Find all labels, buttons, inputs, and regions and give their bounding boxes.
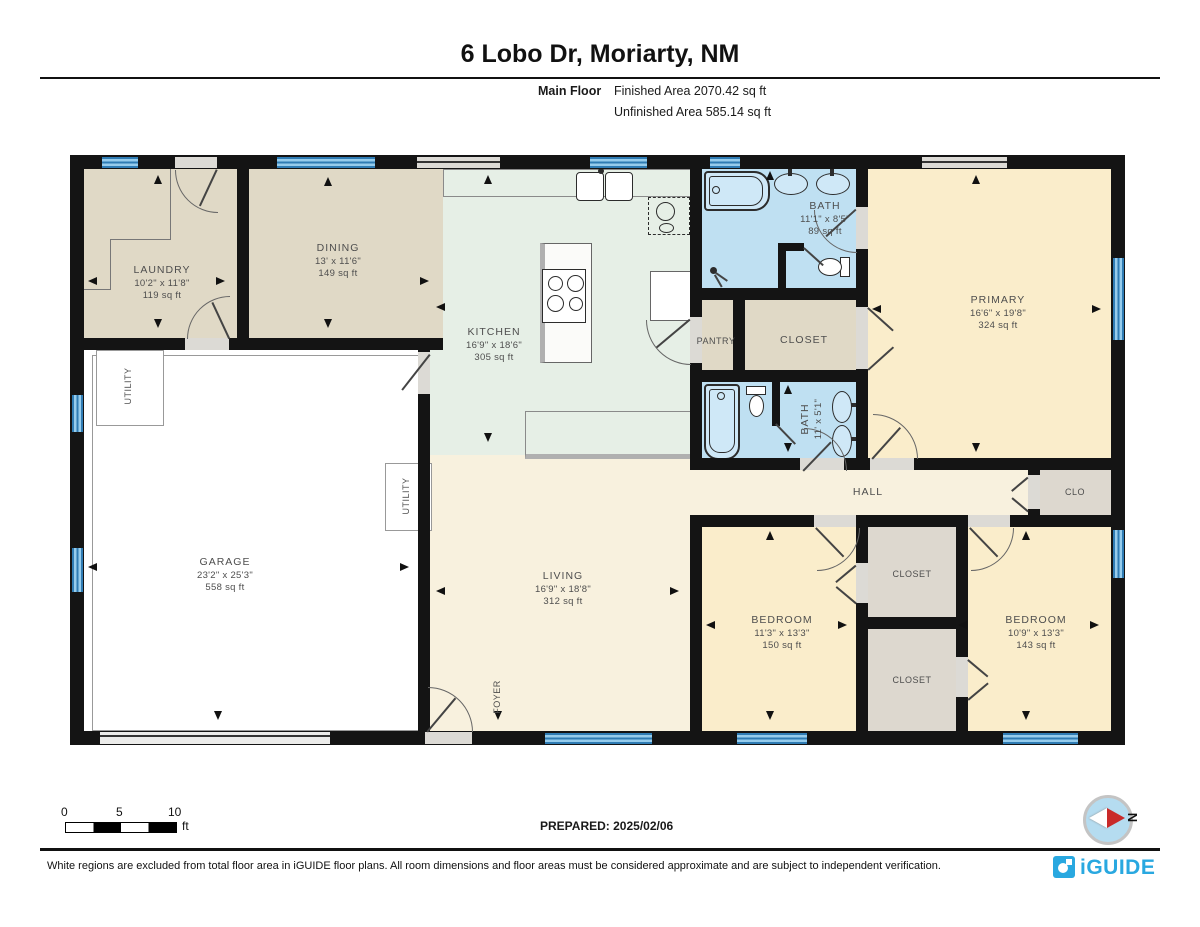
door-opening (968, 515, 1010, 527)
finished-area: Finished Area 2070.42 sq ft (614, 84, 766, 98)
room-label-closet-b: CLOSET (892, 675, 931, 687)
measure-arrow (766, 531, 774, 540)
toilet-tank (746, 386, 766, 395)
measure-arrow (706, 621, 715, 629)
wall-segment (70, 155, 84, 745)
stove-burner (548, 276, 563, 291)
measure-arrow (784, 443, 792, 452)
footer-disclaimer: White regions are excluded from total fl… (47, 860, 987, 872)
laundry-counter-line (170, 169, 171, 239)
measure-arrow (88, 277, 97, 285)
measure-arrow (214, 711, 222, 720)
scale-tick-10: 10 (168, 805, 181, 819)
measure-arrow (216, 277, 225, 285)
bathtub (704, 171, 770, 211)
measure-arrow (1022, 711, 1030, 720)
room-label-kitchen: KITCHEN 16'9" x 18'6" 305 sq ft (466, 326, 522, 364)
door-opening (175, 157, 217, 168)
room-label-living: LIVING 16'9" x 18'8" 312 sq ft (535, 570, 591, 608)
scale-tick-0: 0 (61, 805, 68, 819)
laundry-counter-line (110, 239, 111, 289)
stove-burner (567, 275, 584, 292)
measure-arrow (958, 621, 967, 629)
room-closets-mid (868, 527, 956, 731)
iguide-brand: iGUIDE (1080, 856, 1155, 880)
footer-divider (40, 848, 1160, 851)
wall-segment (690, 527, 702, 731)
door-opening (185, 338, 229, 350)
measure-arrow (88, 563, 97, 571)
compass-needle-north (1107, 808, 1125, 828)
sink (774, 173, 808, 195)
compass-needle-tail (1089, 808, 1107, 828)
measure-arrow (420, 277, 429, 285)
floor-label: Main Floor (538, 84, 601, 98)
window (72, 395, 83, 432)
garage-door-opening (100, 732, 330, 744)
prepared-date: PREPARED: 2025/02/06 (540, 819, 673, 833)
room-label-garage: GARAGE 23'2" x 25'3" 558 sq ft (197, 556, 253, 594)
kitchen-sink-basin (576, 172, 604, 201)
wall-segment (1111, 155, 1125, 745)
room-label-dining: DINING 13' x 11'6" 149 sq ft (315, 242, 361, 280)
window (545, 733, 652, 744)
kitchen-counter-bottom (525, 411, 692, 459)
appliance-burner-icon (656, 202, 675, 221)
door-opening (856, 307, 868, 369)
door-opening (870, 458, 914, 470)
window (72, 548, 83, 592)
measure-arrow (400, 563, 409, 571)
compass: N (1080, 792, 1140, 848)
title-divider (40, 77, 1160, 79)
door-opening (1028, 475, 1040, 509)
measure-arrow (784, 385, 792, 394)
bathtub (704, 384, 740, 460)
measure-arrow (436, 587, 445, 595)
sink (832, 391, 852, 423)
door-opening (418, 352, 430, 394)
room-label-primary: PRIMARY 16'6" x 19'8" 324 sq ft (970, 294, 1026, 332)
room-label-utility-a: UTILITY (123, 367, 135, 404)
window (102, 157, 138, 168)
scale-bar: 0 5 10 ft (60, 805, 220, 840)
stove-burner (547, 295, 564, 312)
unfinished-area: Unfinished Area 585.14 sq ft (614, 105, 771, 119)
door-opening (956, 657, 968, 697)
scale-bar-segments (65, 822, 177, 833)
toilet-bowl (749, 395, 764, 417)
kitchen-fridge-box (650, 271, 692, 321)
wall-segment (868, 617, 956, 629)
measure-arrow (1092, 305, 1101, 313)
measure-arrow (1090, 621, 1099, 629)
room-label-hall: HALL (853, 486, 883, 500)
door-opening (425, 732, 472, 744)
measure-arrow (972, 443, 980, 452)
measure-arrow (324, 319, 332, 328)
measure-arrow (324, 177, 332, 186)
room-label-bedroom-a: BEDROOM 11'3" x 13'3" 150 sq ft (751, 614, 812, 652)
room-label-pantry: PANTRY (697, 336, 736, 348)
room-label-utility-b: UTILITY (401, 477, 413, 514)
toilet-bowl (818, 258, 842, 276)
measure-arrow (484, 433, 492, 442)
sink-faucet (788, 168, 792, 176)
floor-plan: LAUNDRY 10'2" x 11'8" 119 sq ft DINING 1… (70, 155, 1125, 745)
measure-arrow (154, 319, 162, 328)
room-label-bath-main: BATH 11'1" x 8'5" 89 sq ft (800, 200, 850, 238)
door-opening (856, 563, 868, 603)
window (590, 157, 647, 168)
room-label-foyer: FOYER (492, 680, 504, 714)
door-opening (856, 207, 868, 249)
room-label-bedroom-b: BEDROOM 10'9" x 13'3" 143 sq ft (1005, 614, 1066, 652)
door-opening (814, 515, 856, 527)
scale-tick-5: 5 (116, 805, 123, 819)
room-label-closet-a: CLOSET (892, 569, 931, 581)
wall-opening (922, 157, 1007, 168)
wall-segment (237, 169, 249, 350)
measure-arrow (484, 175, 492, 184)
measure-arrow (436, 303, 445, 311)
iguide-logo-icon (1053, 856, 1075, 878)
room-label-closet-primary: CLOSET (780, 334, 828, 348)
bathtub-drain (717, 392, 725, 400)
window (1113, 258, 1124, 340)
measure-arrow (972, 175, 980, 184)
wall-segment (70, 338, 443, 350)
compass-north-label: N (1125, 813, 1140, 822)
floor-plan-page: 6 Lobo Dr, Moriarty, NM Main Floor Finis… (0, 0, 1200, 927)
appliance-oval-icon (659, 223, 674, 233)
wall-segment (772, 382, 780, 426)
scale-unit: ft (182, 819, 189, 833)
measure-arrow (838, 621, 847, 629)
wall-segment (418, 350, 430, 731)
bathtub-drain (712, 186, 720, 194)
laundry-counter-line (110, 239, 171, 240)
measure-arrow (154, 175, 162, 184)
window (277, 157, 375, 168)
kitchen-sink-basin (605, 172, 633, 201)
window (1113, 530, 1124, 578)
stove-burner (569, 297, 583, 311)
wall-opening (417, 157, 500, 168)
measure-arrow (766, 711, 774, 720)
wall-segment (702, 370, 868, 382)
measure-arrow (872, 305, 881, 313)
wall-segment (690, 515, 1111, 527)
wall-segment (956, 527, 968, 731)
sink-faucet (830, 168, 834, 176)
wall-segment (856, 527, 868, 731)
window (1003, 733, 1078, 744)
sink (816, 173, 850, 195)
room-label-clo: CLO (1065, 487, 1085, 499)
room-label-bath-hall: BATH 11' x 5'1" (799, 399, 825, 439)
window (710, 157, 740, 168)
room-label-laundry: LAUNDRY 10'2" x 11'8" 119 sq ft (134, 264, 191, 302)
wall-segment (778, 243, 786, 288)
wall-segment (702, 288, 856, 300)
measure-arrow (766, 171, 774, 180)
measure-arrow (1022, 531, 1030, 540)
window (737, 733, 807, 744)
kitchen-counter-top (443, 169, 692, 197)
laundry-counter-line (84, 289, 111, 290)
iguide-logo-notch (1066, 859, 1072, 865)
page-title: 6 Lobo Dr, Moriarty, NM (0, 40, 1200, 69)
measure-arrow (670, 587, 679, 595)
